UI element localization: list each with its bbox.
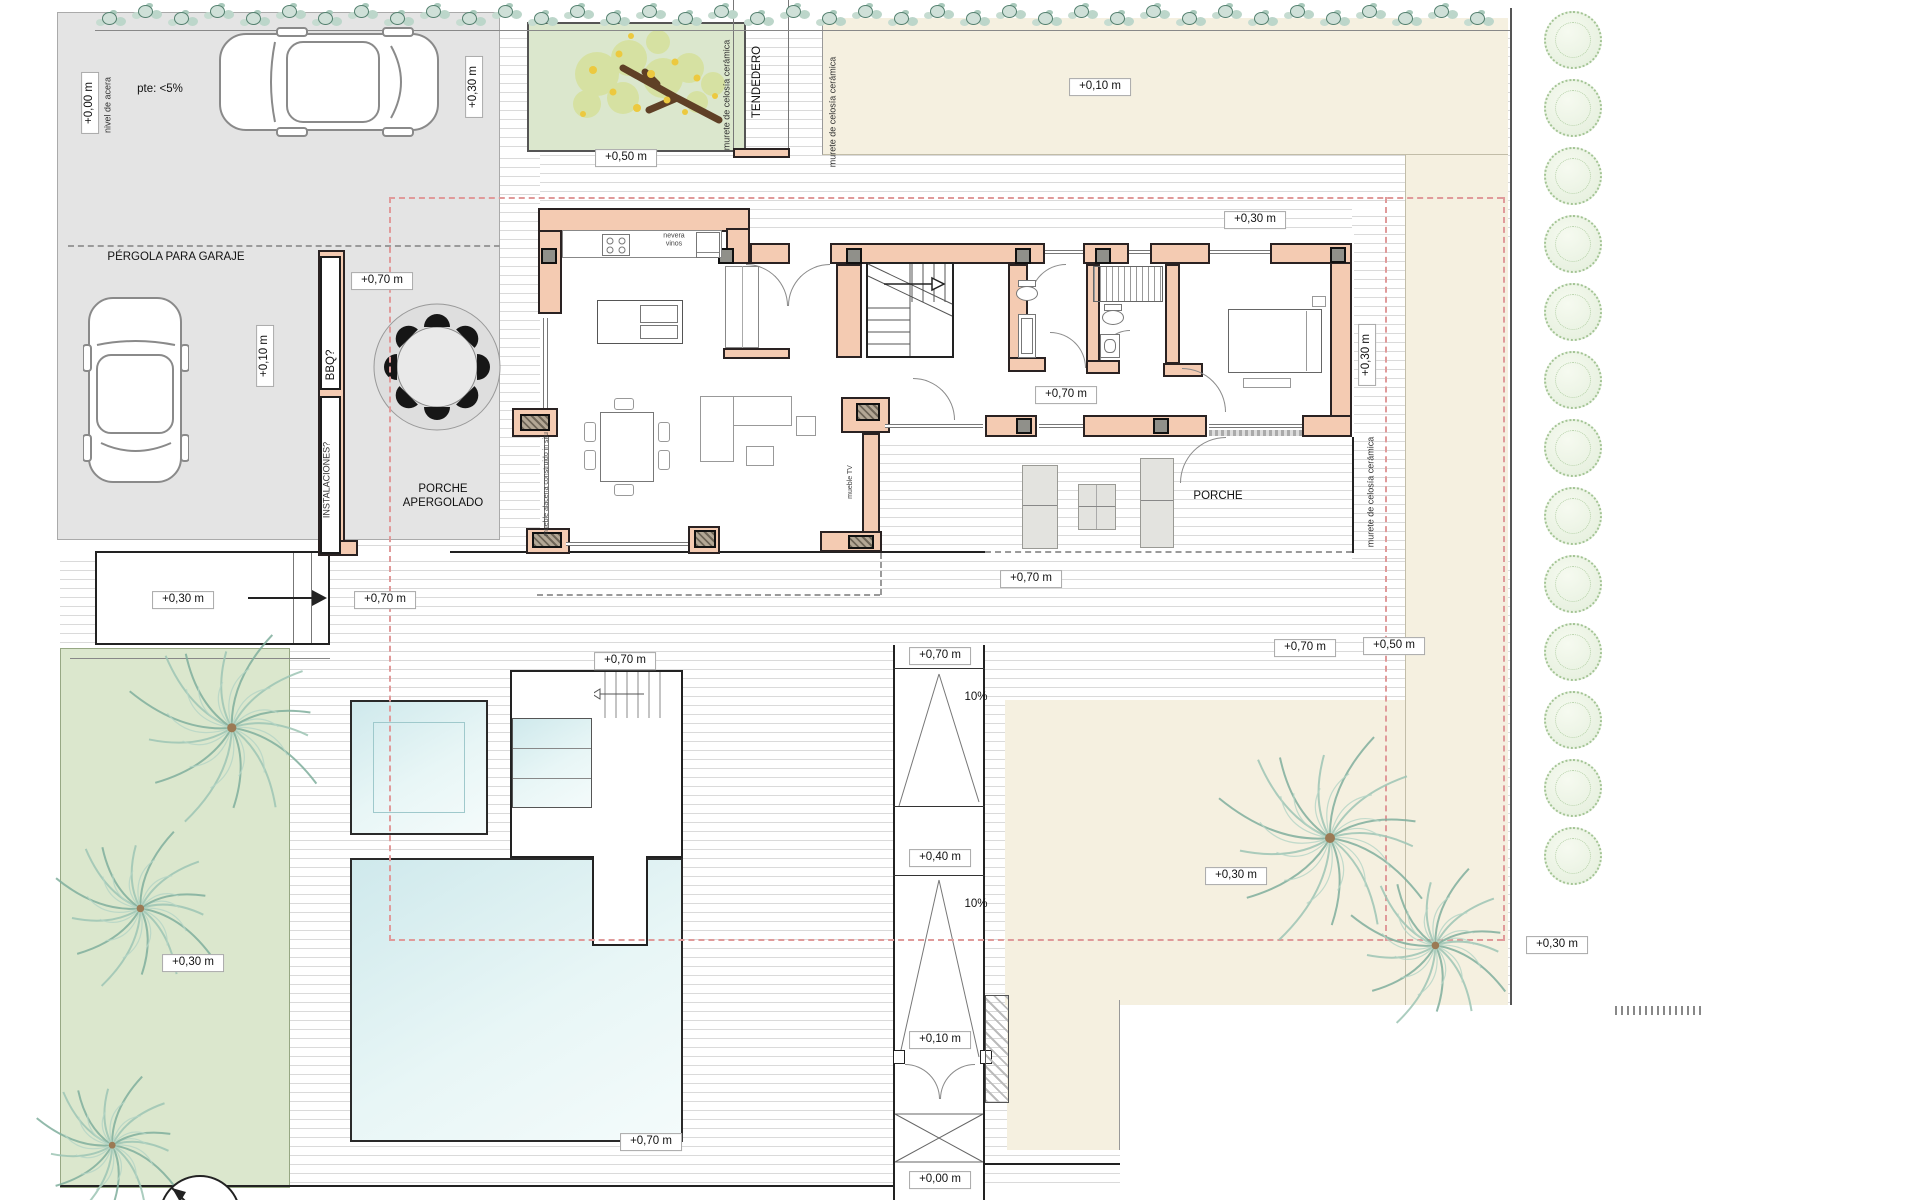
elevation-label: +0,30 m (152, 591, 214, 609)
note-nivel-acera: nivel de acera (103, 77, 114, 133)
note-mueble-tv: mueble TV (847, 465, 855, 499)
elevation-label: +0,10 m (1069, 78, 1131, 96)
note-ramp-slope: 10% (964, 898, 987, 912)
elevation-label: +0,30 m (1205, 867, 1267, 885)
elevation-label: +0,10 m (909, 1031, 971, 1049)
note-murete-celosia: murete de celosía cerámica (722, 40, 733, 151)
area-label-pergola-garaje: PÉRGOLA PARA GARAJE (107, 251, 244, 265)
note-murete-celosia: murete de celosía cerámica (828, 57, 839, 168)
area-label-porche-apergolado: PORCHE APERGOLADO (403, 483, 484, 511)
elevation-label: +0,70 m (620, 1133, 682, 1151)
note-mueble-alacena: mueble alacena construido in situ (543, 432, 551, 536)
note-nevera-vinos: nevera vinos (663, 233, 684, 250)
elevation-label: +0,70 m (1000, 570, 1062, 588)
elevation-label: +0,50 m (1363, 637, 1425, 655)
note-ramp-slope: 10% (964, 691, 987, 705)
note-slope-driveway: pte: <5% (137, 83, 183, 97)
elevation-label: +0,30 m (1526, 936, 1588, 954)
elevation-label: +0,50 m (595, 149, 657, 167)
elevation-label: +0,30 m (465, 56, 483, 118)
elevation-label: +0,70 m (594, 652, 656, 670)
area-label-porche: PORCHE (1193, 490, 1242, 504)
elevation-label: +0,40 m (909, 849, 971, 867)
elevation-label: +0,00 m (81, 72, 99, 134)
elevation-label: +0,30 m (162, 954, 224, 972)
elevation-label: +0,70 m (354, 591, 416, 609)
elevation-label: +0,30 m (1224, 211, 1286, 229)
elevation-label: +0,70 m (351, 272, 413, 290)
elevation-label: +0,70 m (909, 647, 971, 665)
note-murete-celosia: murete de celosía cerámica (1366, 437, 1377, 548)
elevation-label: +0,30 m (1358, 324, 1376, 386)
elevation-label: +0,70 m (1274, 639, 1336, 657)
floor-plan: +0,00 mnivel de acerapte: <5%+0,30 mPÉRG… (0, 0, 1920, 1200)
labels-layer: +0,00 mnivel de acerapte: <5%+0,30 mPÉRG… (0, 0, 1920, 1200)
elevation-label: +0,70 m (1035, 386, 1097, 404)
elevation-label: +0,10 m (256, 325, 274, 387)
room-label-instalaciones: INSTALACIONES? (322, 442, 333, 518)
area-label-tendedero: TENDEDERO (751, 46, 765, 118)
elevation-label: +0,00 m (909, 1171, 971, 1189)
room-label-bbq: BBQ? (325, 350, 339, 381)
